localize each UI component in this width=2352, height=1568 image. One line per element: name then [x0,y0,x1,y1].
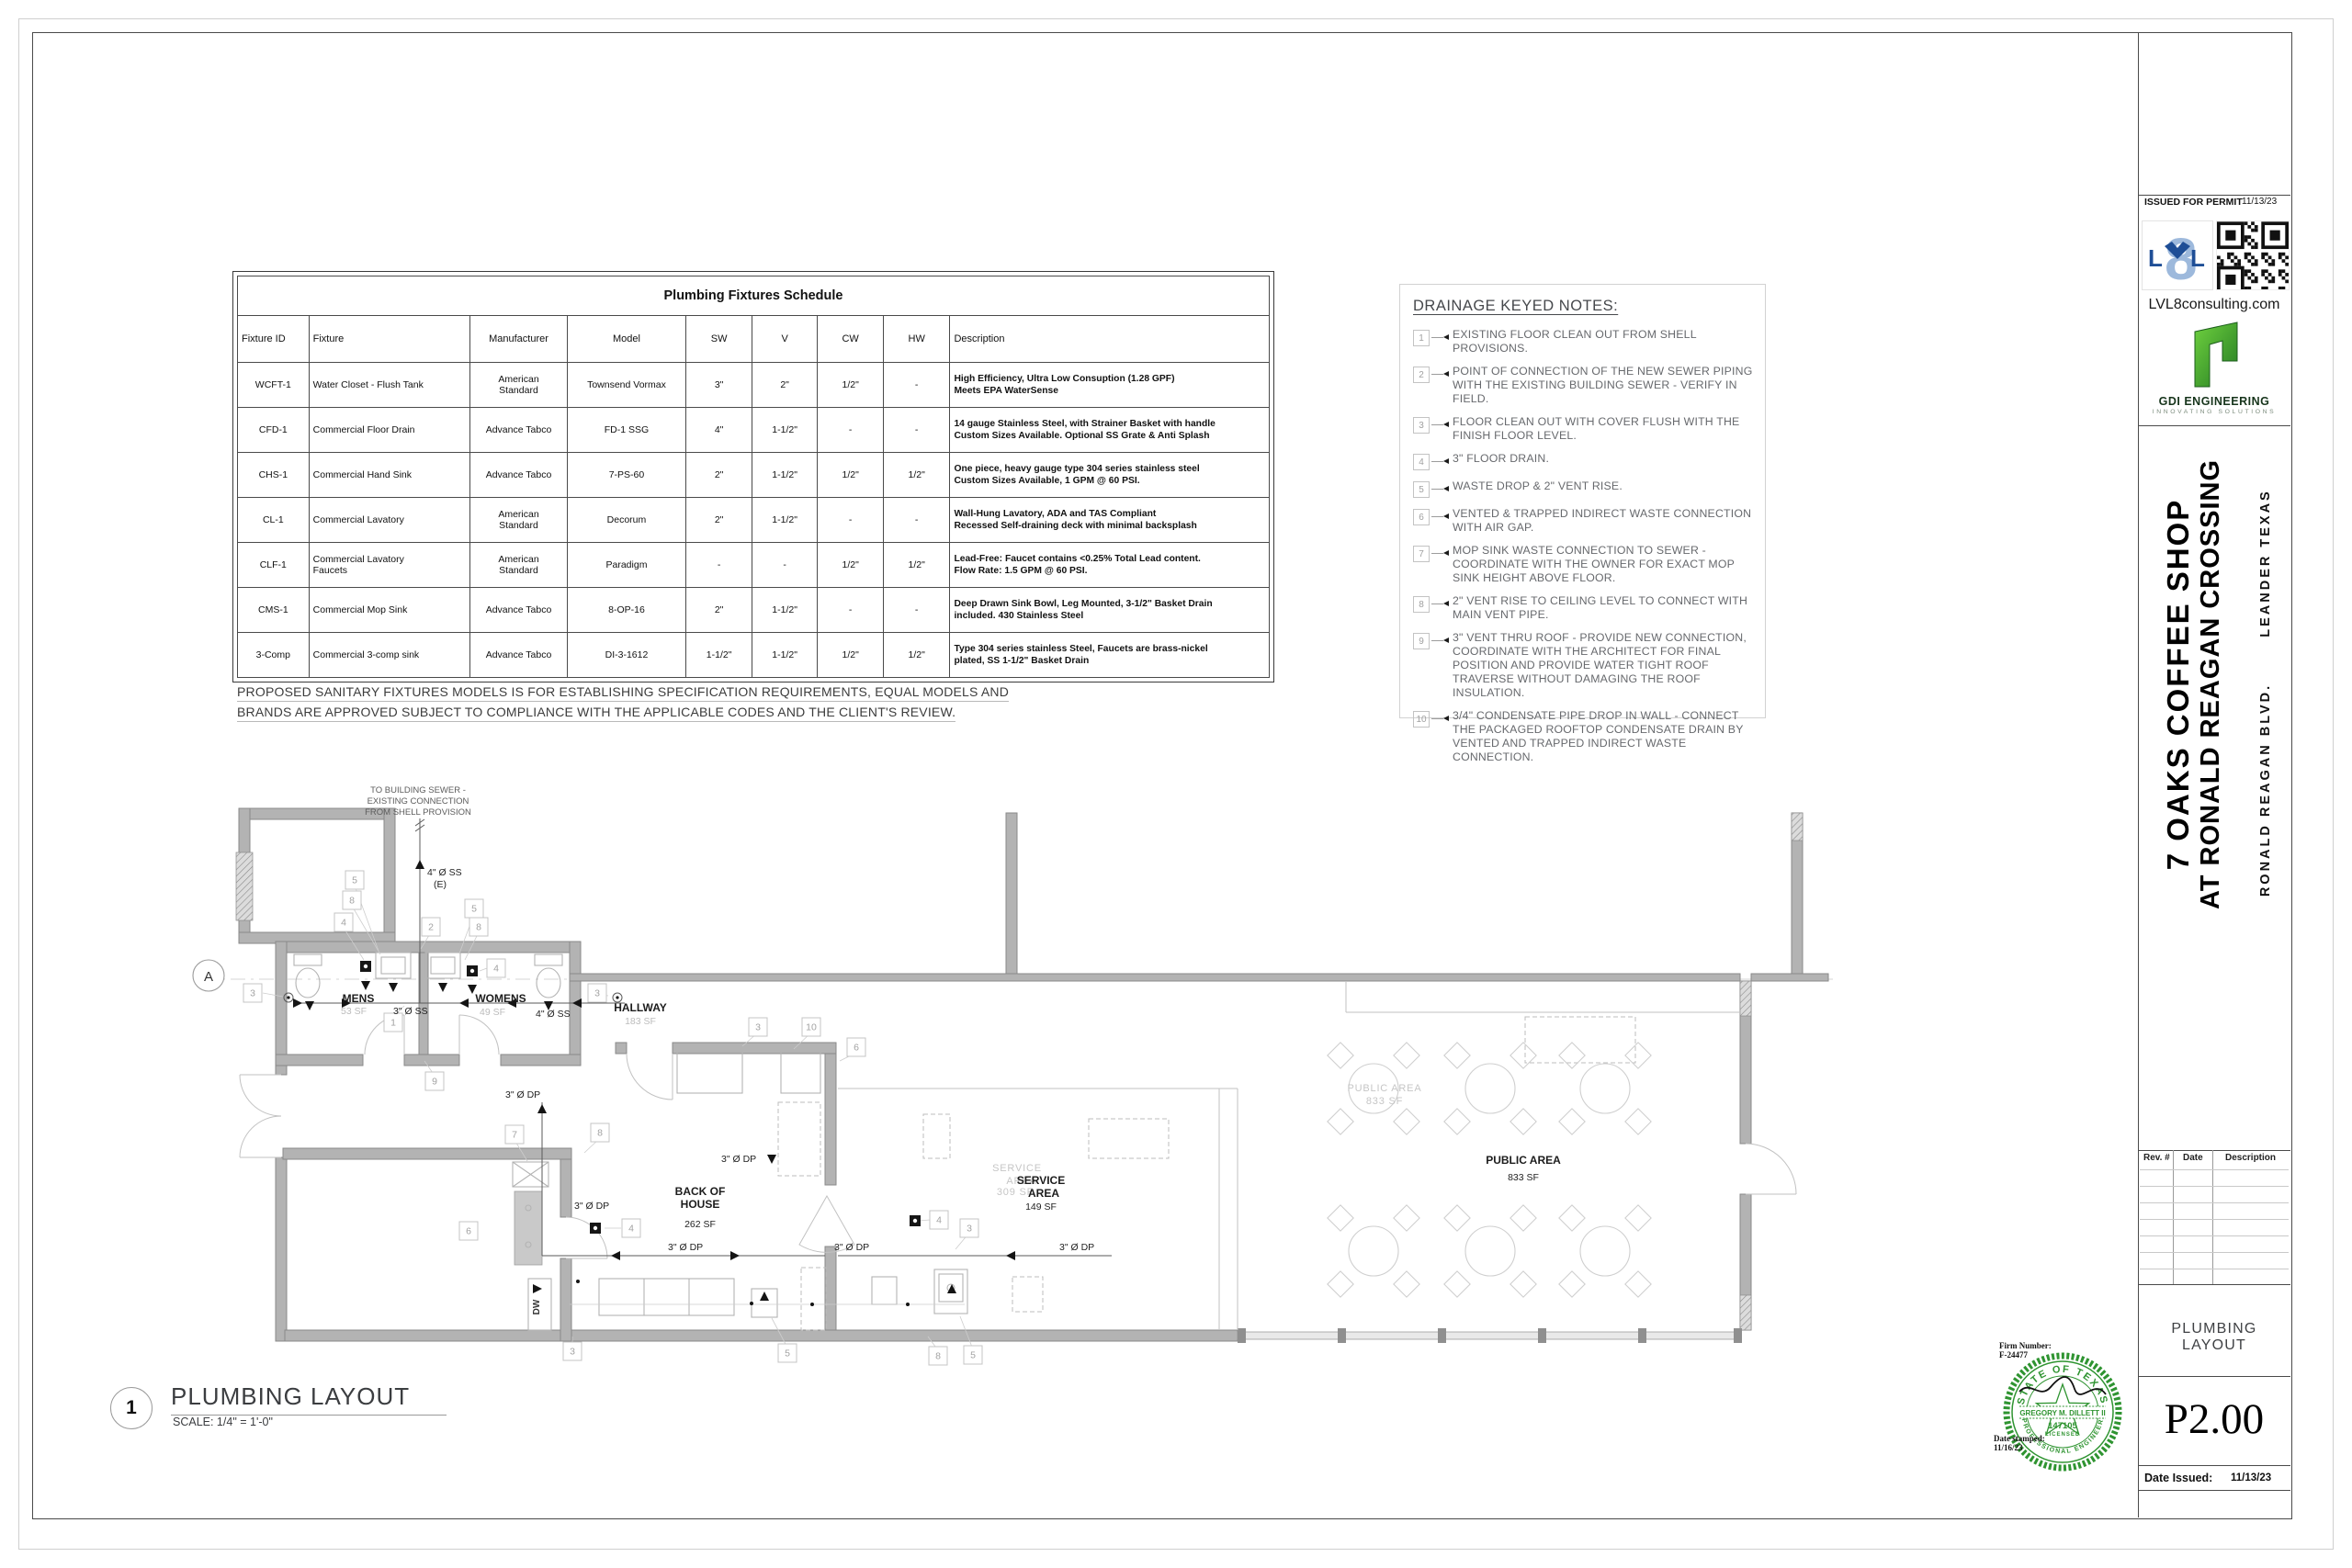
qr-module [2255,280,2258,284]
schedule-note-line: BRANDS ARE APPROVED SUBJECT TO COMPLIANC… [237,705,955,722]
flow-arrow [293,998,302,1008]
leader-line [480,968,487,971]
wall [285,1330,1238,1341]
room-label: MENS [343,992,375,1005]
qr-module [2251,273,2255,276]
schedule-cell: AmericanStandard [470,363,567,408]
qr-module [2268,280,2272,284]
dining-chair [1394,1109,1419,1134]
schedule-cell: 1-1/2" [752,498,818,543]
schedule-cell: - [883,588,950,633]
schedule-col-header: Model [567,316,686,363]
project-title-line2: AT RONALD REAGAN CROSSING [2196,335,2226,1033]
wall-hatch [236,852,253,920]
project-title-line1: 7 OAKS COFFEE SHOP [2161,335,2196,1033]
storefront-mullion [1638,1328,1646,1343]
project-address-city: LEANDER TEXAS [2258,416,2273,710]
arrowhead-icon [1443,601,1449,606]
qr-module [2261,273,2265,276]
schedule-row: CFD-1Commercial Floor DrainAdvance Tabco… [238,408,1270,453]
qr-module [2271,263,2275,266]
pipe-size-label: 4" Ø SS [427,867,462,878]
keyed-tag-number: 8 [935,1351,941,1362]
engineer-seal: STATE OF TEXAS GREGORY M. DILLETT II 147… [1966,1325,2168,1517]
schedule-cell: 1/2" [818,453,884,498]
schedule-col-header: HW [883,316,950,363]
schedule-cell: Advance Tabco [470,633,567,678]
flow-arrow [611,1251,620,1260]
keyed-note-text: 2" VENT RISE TO CEILING LEVEL TO CONNECT… [1453,594,1754,622]
keyed-note-tag: 10 [1413,711,1430,728]
qr-module [2247,287,2251,290]
qr-module [2278,287,2282,290]
qr-module [2245,273,2248,276]
schedule-col-header: CW [818,316,884,363]
schedule-cell: 1-1/2" [752,453,818,498]
keyed-note-tag: 4 [1413,454,1430,470]
wall-hatch [1740,1295,1751,1330]
rev-row-line [2140,1202,2289,1203]
leader-line [1431,374,1443,375]
circle [750,1302,753,1305]
keyed-tag-number: 7 [512,1130,517,1141]
schedule-cell: AmericanStandard [470,543,567,588]
date-stamped-label: Date stamped: [1994,1434,2045,1443]
schedule-col-header: SW [686,316,752,363]
arrowhead-icon [1443,422,1449,427]
equipment-outline-dashed [1089,1119,1169,1158]
dining-chair [1559,1271,1585,1297]
pipe-size-label: 4" Ø SS [536,1009,571,1020]
schedule-col-header: V [752,316,818,363]
schedule-cell: 1-1/2" [686,633,752,678]
keyed-note-text: WASTE DROP & 2" VENT RISE. [1453,479,1623,493]
leader-line [1431,718,1443,719]
schedule-note: PROPOSED SANITARY FIXTURES MODELS IS FOR… [237,684,1248,725]
leader-line [1431,553,1443,554]
wall [276,1157,287,1341]
qr-module [2282,253,2286,256]
leader-line [1431,489,1443,490]
schedule-cell: Commercial Lavatory [309,498,470,543]
keyed-tag-number: 2 [428,922,434,933]
qr-module [2231,259,2234,263]
flow-arrow [305,1001,314,1010]
keyed-note-tag: 5 [1413,481,1430,498]
qr-module [2261,256,2265,260]
pipe-size-label: 3" Ø DP [1059,1242,1094,1253]
schedule-cell: - [883,408,950,453]
website-link[interactable]: LVL8consulting.com [2138,297,2290,313]
qr-finder-core [2225,231,2235,241]
schedule-description: Wall-Hung Lavatory, ADA and TAS Complian… [950,498,1270,543]
schedule-cell: FD-1 SSG [567,408,686,453]
keyed-tag-number: 8 [597,1128,603,1139]
qr-module [2245,235,2248,239]
qr-module [2265,287,2268,290]
lvl8-logo: 8 L L [2142,220,2213,290]
date-stamped-value: 11/16/23 [1994,1443,2023,1452]
dining-chair [1625,1271,1651,1297]
schedule-cell: CL-1 [238,498,310,543]
schedule-row: CL-1Commercial LavatoryAmericanStandardD… [238,498,1270,543]
schedule-cell: Advance Tabco [470,408,567,453]
qr-module [2255,229,2258,232]
schedule-cell: 1/2" [818,543,884,588]
arrowhead-icon [1443,550,1449,556]
qr-module [2255,259,2258,263]
qr-module [2285,256,2289,260]
lvl8-letter-l2: L [2190,244,2205,272]
rev-row-line [2140,1269,2289,1269]
dining-chair [1444,1043,1470,1068]
qr-module [2255,276,2258,280]
wall [283,1148,571,1159]
qr-module [2247,225,2251,229]
circle [906,1303,910,1306]
keyed-note-text: FLOOR CLEAN OUT WITH COVER FLUSH WITH TH… [1453,415,1754,443]
equipment-outline [599,1279,734,1315]
plumbing-fixtures-schedule: Plumbing Fixtures ScheduleFixture IDFixt… [232,271,1274,682]
schedule-description: High Efficiency, Ultra Low Consuption (1… [950,363,1270,408]
dining-chair [1559,1205,1585,1231]
equipment-outline [535,954,562,965]
schedule-cell: - [883,363,950,408]
wall [825,1247,836,1330]
pipe-size-label: 3" Ø DP [668,1242,703,1253]
room-area-label: 183 SF [625,1016,656,1027]
keyed-note-tag: 1 [1413,330,1430,346]
schedule-cell: 1/2" [883,633,950,678]
floor-drain-center [364,964,367,968]
schedule-cell: CMS-1 [238,588,310,633]
qr-module [2247,269,2251,273]
door-swing [240,1116,281,1157]
dining-chair [1559,1109,1585,1134]
keyed-note-item: 2POINT OF CONNECTION OF THE NEW SEWER PI… [1413,365,1754,406]
keyed-tag-number: 4 [628,1224,634,1235]
door-swing [1746,1144,1796,1194]
schedule-cell: 7-PS-60 [567,453,686,498]
pipe-size-label: 3" Ø DP [721,1154,756,1165]
seal-license-number: 147105 [2048,1421,2077,1431]
keyed-note-tag: 2 [1413,367,1430,383]
schedule-col-header: Description [950,316,1270,363]
room-label: BACK OF [675,1185,726,1198]
flow-arrow [1006,1251,1015,1260]
room-label: WOMENS [475,992,526,1005]
schedule-cell: - [752,543,818,588]
schedule-cell: Water Closet - Flush Tank [309,363,470,408]
qr-module [2278,256,2282,260]
keyed-note-item: 3FLOOR CLEAN OUT WITH COVER FLUSH WITH T… [1413,415,1754,443]
storefront-mullion [1438,1328,1446,1343]
wall [560,1258,571,1341]
area-label: 149 SF [1025,1201,1057,1213]
schedule-cell: 3" [686,363,752,408]
keyed-note-tag: 3 [1413,417,1430,434]
wall [1006,813,1017,974]
room-tag-ghost: PUBLIC AREA [1348,1083,1422,1094]
qr-module [2265,276,2268,280]
storefront-mullion [1338,1328,1346,1343]
qr-module [2245,287,2248,290]
keyed-note-item: 1EXISTING FLOOR CLEAN OUT FROM SHELL PRO… [1413,328,1754,355]
room-label: SERVICE [1017,1174,1065,1187]
dining-table [1349,1226,1398,1276]
wall-hatch [1740,981,1751,1016]
keyed-note-item: 93" VENT THRU ROOF - PROVIDE NEW CONNECT… [1413,631,1754,700]
arrowhead-icon [1443,716,1449,721]
qr-module [2282,276,2286,280]
keyed-note-item: 82" VENT RISE TO CEILING LEVEL TO CONNEC… [1413,594,1754,622]
room-tag-ghost: SERVICE [992,1163,1042,1174]
qr-module [2251,256,2255,260]
firm-number-value: F-24477 [1999,1350,2028,1359]
rev-header-number: Rev. # [2143,1153,2170,1163]
qr-module [2217,263,2221,266]
keyed-note-text: MOP SINK WASTE CONNECTION TO SEWER - COO… [1453,544,1754,585]
keyed-note-text: 3/4" CONDENSATE PIPE DROP IN WALL - CONN… [1453,709,1754,764]
qr-module [2227,256,2231,260]
schedule-row: WCFT-1Water Closet - Flush TankAmericanS… [238,363,1270,408]
schedule-cell: CLF-1 [238,543,310,588]
schedule-row: 3-CompCommercial 3-comp sinkAdvance Tabc… [238,633,1270,678]
rev-row-line [2140,1169,2289,1170]
schedule-cell: 2" [686,453,752,498]
sewer-note: EXISTING CONNECTION [367,796,469,807]
keyed-note-text: EXISTING FLOOR CLEAN OUT FROM SHELL PROV… [1453,328,1754,355]
qr-module [2278,253,2282,256]
arrowhead-icon [1443,513,1449,519]
drainage-keyed-notes: DRAINAGE KEYED NOTES: 1EXISTING FLOOR CL… [1399,284,1766,718]
schedule-cell: Commercial Floor Drain [309,408,470,453]
dining-table [1465,1064,1515,1113]
qr-module [2245,256,2248,260]
floor-plan: A5842583314978631064433585TO BUILDING SE… [184,785,1837,1373]
schedule-cell: 1-1/2" [752,633,818,678]
equipment-outline [872,1277,897,1304]
floor-drain-center [913,1219,917,1223]
rev-row-line [2140,1235,2289,1236]
keyed-note-tag: 7 [1413,546,1430,562]
qr-module [2282,269,2286,273]
dining-table [1580,1226,1630,1276]
schedule-cell: 1/2" [883,543,950,588]
equipment-outline [431,957,455,974]
date-issued-value: 11/13/23 [2231,1472,2271,1483]
schedule-cell: - [686,543,752,588]
qr-module [2278,269,2282,273]
qr-module [2217,256,2221,260]
area-label: 262 SF [684,1219,716,1230]
detail-number-bubble: 1 [110,1387,153,1429]
qr-module [2245,221,2248,225]
qr-module [2245,269,2248,273]
schedule-col-header: Manufacturer [470,316,567,363]
flow-arrow [767,1155,776,1164]
qr-module [2247,259,2251,263]
qr-module [2245,239,2248,243]
schedule-cell: Commercial Hand Sink [309,453,470,498]
storefront-mullion [1734,1328,1742,1343]
flow-arrow [537,1104,547,1113]
leader-line [1431,461,1443,462]
equipment-outline-dashed [923,1114,950,1158]
equipment-outline-dashed [1525,1017,1635,1063]
keyed-note-text: VENTED & TRAPPED INDIRECT WASTE CONNECTI… [1453,507,1754,535]
schedule-cell: Advance Tabco [470,588,567,633]
keyed-tag-number: 4 [493,964,499,975]
door-swing [459,1015,499,1055]
keyed-tag-number: 3 [250,988,255,999]
schedule-cell: Advance Tabco [470,453,567,498]
schedule-cell: 3-Comp [238,633,310,678]
equipment-outline-dashed [1012,1277,1043,1312]
schedule-description: One piece, heavy gauge type 304 series s… [950,453,1270,498]
schedule-title: Plumbing Fixtures Schedule [238,276,1270,316]
qr-module [2251,229,2255,232]
arrowhead-icon [1443,334,1449,340]
schedule-cell: 1-1/2" [752,408,818,453]
qr-module [2255,225,2258,229]
counter-fill [514,1191,542,1265]
cleanout-center [287,996,289,998]
schedule-cell: CFD-1 [238,408,310,453]
pipe-size-label: 3" Ø DP [574,1201,609,1212]
qr-module [2231,253,2234,256]
qr-module [2261,253,2265,256]
keyed-tag-number: 10 [806,1022,817,1033]
pipe-size-label: 3" Ø SS [393,1006,428,1017]
qr-module [2261,287,2265,290]
schedule-note-line: PROPOSED SANITARY FIXTURES MODELS IS FOR… [237,684,1009,702]
qr-module [2251,280,2255,284]
schedule-cell: - [818,408,884,453]
dining-chair [1444,1205,1470,1231]
qr-module [2268,273,2272,276]
qr-module [2227,253,2231,256]
schedule-cell: AmericanStandard [470,498,567,543]
leader-line [1431,337,1443,338]
flow-arrow [459,998,469,1008]
qr-module [2271,276,2275,280]
arrowhead-icon [1443,637,1449,643]
wall [825,1054,836,1185]
dining-chair [1328,1043,1353,1068]
qr-module [2278,273,2282,276]
keyed-tag-number: 9 [432,1077,437,1088]
schedule-cell: DI-3-1612 [567,633,686,678]
schedule-cell: Townsend Vormax [567,363,686,408]
keyed-tag-number: 5 [970,1350,976,1361]
dining-chair [1328,1109,1353,1134]
keyed-tag-number: 8 [476,922,481,933]
qr-module [2271,259,2275,263]
flow-arrow [760,1292,769,1301]
pipe-size-label: (E) [434,879,447,890]
keyed-note-tag: 8 [1413,596,1430,613]
dining-table [1580,1064,1630,1113]
keyed-notes-title: DRAINAGE KEYED NOTES: [1413,298,1754,315]
qr-module [2234,256,2238,260]
rev-header-date: Date [2183,1153,2203,1163]
qr-module [2247,253,2251,256]
equipment-outline [381,957,405,974]
dining-chair [1394,1205,1419,1231]
qr-module [2265,259,2268,263]
room-label: PUBLIC AREA [1486,1154,1561,1167]
equipment-outline-dashed [778,1102,820,1176]
arrowhead-icon [1443,458,1449,464]
floor-drain-center [594,1226,597,1230]
qr-module [2261,269,2265,273]
issued-for-label: ISSUED FOR PERMIT [2144,197,2243,208]
keyed-note-tag: 9 [1413,633,1430,649]
dining-chair [1625,1043,1651,1068]
schedule-col-header: Fixture ID [238,316,310,363]
qr-module [2285,273,2289,276]
schedule-cell: 8-OP-16 [567,588,686,633]
dishwasher-label: DW [532,1299,542,1314]
dining-chair [1625,1109,1651,1134]
schedule-cell: CHS-1 [238,453,310,498]
room-tag-ghost: 833 SF [1366,1096,1403,1107]
drawing-title: PLUMBING LAYOUT [171,1382,447,1416]
room-label: HOUSE [681,1198,720,1211]
qr-module [2237,259,2241,263]
dining-chair [1394,1271,1419,1297]
schedule-cell: Commercial 3-comp sink [309,633,470,678]
keyed-tag-number: 6 [466,1226,471,1237]
titleblock-divider [2138,32,2139,1517]
qr-module [2268,256,2272,260]
keyed-note-item: 5WASTE DROP & 2" VENT RISE. [1413,479,1754,498]
schedule-cell: WCFT-1 [238,363,310,408]
keyed-note-item: 103/4" CONDENSATE PIPE DROP IN WALL - CO… [1413,709,1754,764]
schedule-cell: 2" [686,498,752,543]
issued-date: 11/13/23 [2242,197,2277,207]
keyed-tag-number: 8 [349,896,355,907]
schedule-row: CMS-1Commercial Mop SinkAdvance Tabco8-O… [238,588,1270,633]
dining-chair [1328,1205,1353,1231]
dining-chair [1444,1271,1470,1297]
qr-module [2237,263,2241,266]
qr-module [2255,263,2258,266]
schedule-cell: 1/2" [818,363,884,408]
rev-row-line [2140,1186,2289,1187]
equipment-outline [294,954,322,965]
schedule-cell: - [818,498,884,543]
qr-module [2234,263,2238,266]
arrowhead-icon [1443,371,1449,377]
seal-engineer-name: GREGORY M. DILLETT II [2019,1409,2105,1417]
dining-chair [1625,1205,1651,1231]
qr-module [2285,263,2289,266]
schedule-cell: 4" [686,408,752,453]
qr-module [2221,259,2224,263]
qr-module [2255,243,2258,246]
schedule-col-header: Fixture [309,316,470,363]
flow-arrow [730,1251,740,1260]
room-label: AREA [1028,1187,1059,1200]
keyed-note-item: 6VENTED & TRAPPED INDIRECT WASTE CONNECT… [1413,507,1754,535]
door-swing [240,1075,281,1116]
wall [560,1159,571,1217]
dining-chair [1444,1109,1470,1134]
qr-module [2247,235,2251,239]
rev-header-description: Description [2225,1153,2276,1163]
